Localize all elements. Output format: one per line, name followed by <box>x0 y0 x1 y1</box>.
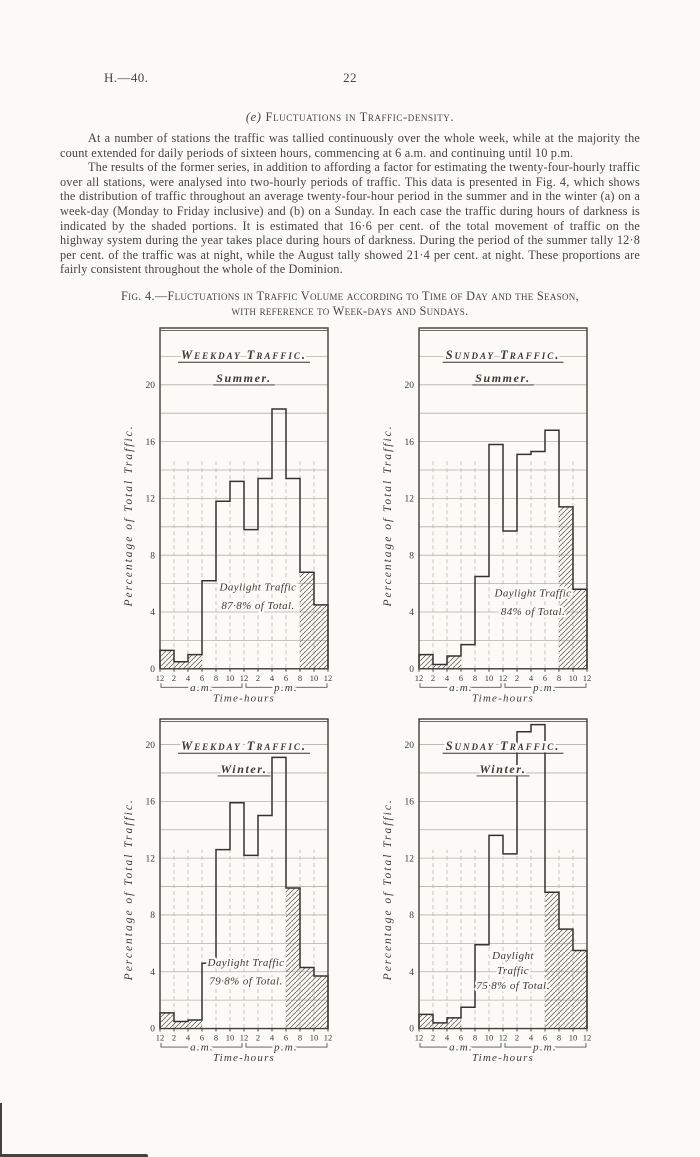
y-tick-label: 16 <box>405 438 415 448</box>
chart-title: Sunday Traffic. <box>446 348 561 362</box>
daylight-annotation: Daylight <box>491 950 534 962</box>
y-tick-label: 12 <box>405 854 415 864</box>
pm-label: p.m. <box>532 682 557 694</box>
y-tick-label: 4 <box>409 608 414 618</box>
chart-weekday-winter: 048121620Percentage of Total Traffic.122… <box>116 712 338 1072</box>
section-heading: (e)Fluctuations in Traffic-density. <box>62 110 638 125</box>
y-tick-label: 16 <box>405 797 415 807</box>
chart-subtitle: Winter. <box>479 762 526 776</box>
y-tick-label: 4 <box>150 968 155 978</box>
pm-label: p.m. <box>532 1041 557 1053</box>
x-tick-label: 12 <box>156 673 164 683</box>
y-tick-label: 0 <box>409 1024 414 1034</box>
night-bar <box>174 662 188 669</box>
y-tick-label: 20 <box>405 381 415 391</box>
x-axis-title: Time-hours <box>213 1052 275 1064</box>
chart-sunday-winter: 048121620Percentage of Total Traffic.122… <box>375 712 597 1072</box>
x-tick-label: 2 <box>431 1032 435 1042</box>
x-tick-label: 8 <box>473 1032 477 1042</box>
figure-caption-line2: with reference to Week-days and Sundays. <box>40 304 660 319</box>
x-tick-label: 8 <box>557 1032 561 1042</box>
y-tick-label: 4 <box>409 968 414 978</box>
paragraph-2: The results of the former series, in add… <box>60 160 640 277</box>
scan-edge-artifact <box>0 1103 2 1157</box>
night-bar <box>188 655 202 669</box>
night-bar <box>314 976 328 1029</box>
y-tick-label: 0 <box>150 1024 155 1034</box>
night-bar <box>419 655 433 669</box>
night-bar <box>447 1018 461 1029</box>
x-tick-label: 8 <box>473 673 477 683</box>
page-header: H.—40. 22 <box>0 70 700 88</box>
x-tick-label: 12 <box>499 1032 507 1042</box>
section-heading-index: (e) <box>246 110 262 124</box>
x-tick-label: 8 <box>557 673 561 683</box>
figure-caption: Fig. 4.—Fluctuations in Traffic Volume a… <box>40 289 660 319</box>
y-tick-label: 0 <box>150 665 155 675</box>
am-label: a.m. <box>449 1041 473 1053</box>
y-tick-label: 16 <box>146 438 156 448</box>
y-tick-label: 20 <box>146 740 156 750</box>
x-tick-label: 2 <box>256 673 260 683</box>
chart-svg: 048121620Percentage of Total Traffic.122… <box>375 321 597 707</box>
chart-svg: 048121620Percentage of Total Traffic.122… <box>116 321 338 707</box>
night-bar <box>447 656 461 669</box>
y-axis-title: Percentage of Total Traffic. <box>382 424 394 607</box>
chart-subtitle: Winter. <box>220 762 267 776</box>
x-tick-label: 10 <box>226 673 234 683</box>
x-tick-label: 2 <box>172 673 176 683</box>
daylight-annotation: Daylight Traffic <box>219 582 297 594</box>
chart-sunday-summer: 048121620Percentage of Total Traffic.122… <box>375 321 597 712</box>
y-tick-label: 8 <box>150 911 155 921</box>
night-bar <box>573 950 587 1028</box>
x-tick-label: 8 <box>298 673 302 683</box>
pm-label: p.m. <box>273 682 298 694</box>
daylight-annotation: Daylight Traffic <box>207 957 285 969</box>
y-tick-label: 4 <box>150 608 155 618</box>
night-bar <box>573 589 587 669</box>
chart-svg: 048121620Percentage of Total Traffic.122… <box>375 712 597 1067</box>
x-tick-label: 12 <box>415 673 423 683</box>
night-bar <box>300 572 314 669</box>
x-tick-label: 12 <box>324 673 332 683</box>
night-bar <box>174 1021 188 1028</box>
night-bar <box>419 1014 433 1028</box>
daylight-annotation: Traffic <box>497 965 529 977</box>
y-tick-label: 8 <box>409 551 414 561</box>
x-tick-label: 12 <box>156 1032 164 1042</box>
x-tick-label: 10 <box>569 673 577 683</box>
daylight-annotation: 84% of Total. <box>501 606 565 618</box>
y-tick-label: 20 <box>146 381 156 391</box>
x-tick-label: 12 <box>583 1032 591 1042</box>
daylight-annotation: 79·8% of Total. <box>209 975 282 987</box>
y-axis-title: Percentage of Total Traffic. <box>382 798 394 981</box>
night-bar <box>314 605 328 669</box>
x-tick-label: 10 <box>310 673 318 683</box>
am-label: a.m. <box>190 1041 214 1053</box>
page-number: 22 <box>0 70 700 86</box>
figure-4: 048121620Percentage of Total Traffic.122… <box>116 321 700 1071</box>
daylight-annotation: 87·8% of Total. <box>221 600 294 612</box>
x-tick-label: 12 <box>415 1032 423 1042</box>
x-tick-label: 8 <box>214 673 218 683</box>
x-tick-label: 10 <box>310 1032 318 1042</box>
daylight-annotation: 75·8% of Total. <box>476 980 549 992</box>
y-tick-label: 0 <box>409 665 414 675</box>
night-bar <box>300 967 314 1028</box>
am-label: a.m. <box>449 682 473 694</box>
section-heading-text: Fluctuations in Traffic-density. <box>266 110 455 124</box>
night-bar <box>545 892 559 1028</box>
night-bar <box>160 1013 174 1029</box>
night-bar <box>160 650 174 668</box>
x-tick-label: 10 <box>485 673 493 683</box>
x-tick-label: 10 <box>569 1032 577 1042</box>
x-tick-label: 12 <box>240 673 248 683</box>
paragraph-1: At a number of stations the traffic was … <box>60 131 640 160</box>
y-tick-label: 8 <box>150 551 155 561</box>
y-tick-label: 12 <box>405 495 415 505</box>
x-tick-label: 8 <box>298 1032 302 1042</box>
night-bar <box>188 1020 202 1029</box>
y-tick-label: 12 <box>146 854 156 864</box>
x-tick-label: 2 <box>256 1032 260 1042</box>
night-bar <box>559 929 573 1028</box>
y-axis-title: Percentage of Total Traffic. <box>123 798 135 981</box>
x-tick-label: 12 <box>240 1032 248 1042</box>
night-bar <box>433 1023 447 1029</box>
pm-label: p.m. <box>273 1041 298 1053</box>
y-tick-label: 8 <box>409 911 414 921</box>
daylight-annotation: Daylight Traffic <box>494 587 572 599</box>
x-tick-label: 2 <box>431 673 435 683</box>
x-tick-label: 2 <box>515 1032 519 1042</box>
y-tick-label: 20 <box>405 740 415 750</box>
x-tick-label: 10 <box>485 1032 493 1042</box>
x-axis-title: Time-hours <box>472 1052 534 1064</box>
y-tick-label: 16 <box>146 797 156 807</box>
chart-title: Weekday Traffic. <box>181 739 307 753</box>
chart-weekday-summer: 048121620Percentage of Total Traffic.122… <box>116 321 338 712</box>
figure-caption-line1: Fig. 4.—Fluctuations in Traffic Volume a… <box>40 289 660 304</box>
x-tick-label: 12 <box>324 1032 332 1042</box>
x-axis-title: Time-hours <box>472 692 534 704</box>
x-axis-title: Time-hours <box>213 692 275 704</box>
chart-title: Sunday Traffic. <box>446 739 561 753</box>
x-tick-label: 2 <box>515 673 519 683</box>
chart-subtitle: Summer. <box>475 371 531 385</box>
y-tick-label: 12 <box>146 495 156 505</box>
y-axis-title: Percentage of Total Traffic. <box>123 424 135 607</box>
x-tick-label: 8 <box>214 1032 218 1042</box>
x-tick-label: 12 <box>583 673 591 683</box>
x-tick-label: 12 <box>499 673 507 683</box>
night-bar <box>286 888 300 1029</box>
document-page: H.—40. 22 (e)Fluctuations in Traffic-den… <box>0 0 700 1157</box>
chart-svg: 048121620Percentage of Total Traffic.122… <box>116 712 338 1067</box>
x-tick-label: 2 <box>172 1032 176 1042</box>
am-label: a.m. <box>190 682 214 694</box>
chart-title: Weekday Traffic. <box>181 348 307 362</box>
chart-subtitle: Summer. <box>216 371 272 385</box>
x-tick-label: 10 <box>226 1032 234 1042</box>
